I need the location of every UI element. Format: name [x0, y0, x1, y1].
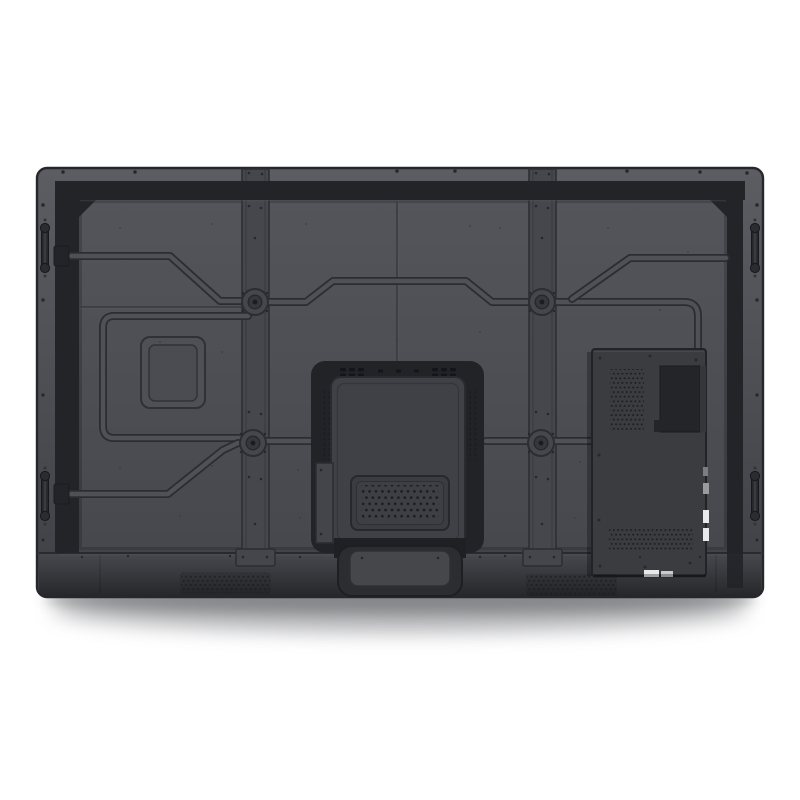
bracket-door — [316, 463, 333, 543]
channel-end-cap-top — [54, 246, 69, 266]
bracket-tongue — [334, 538, 466, 596]
speaker-grille-left — [180, 572, 271, 594]
handle-left-bottom — [40, 467, 49, 526]
wall-mount-recess — [311, 361, 484, 553]
square-plate — [141, 337, 205, 408]
module-ops-cover — [654, 366, 706, 432]
handle-left-top — [40, 219, 49, 278]
ops-module — [587, 349, 709, 578]
channel-end-cap-bottom — [54, 484, 69, 504]
vesa-rail-left — [242, 169, 269, 552]
bracket-vent — [351, 476, 449, 530]
cable-cover-strip — [727, 553, 743, 588]
module-vent-top — [610, 369, 644, 431]
speaker-grille-right — [526, 574, 617, 596]
vesa-rail-right — [529, 169, 556, 552]
module-vent-bottom — [609, 527, 693, 552]
product-photo — [0, 0, 800, 800]
handle-right-top — [750, 219, 759, 278]
handle-right-bottom — [750, 467, 759, 526]
